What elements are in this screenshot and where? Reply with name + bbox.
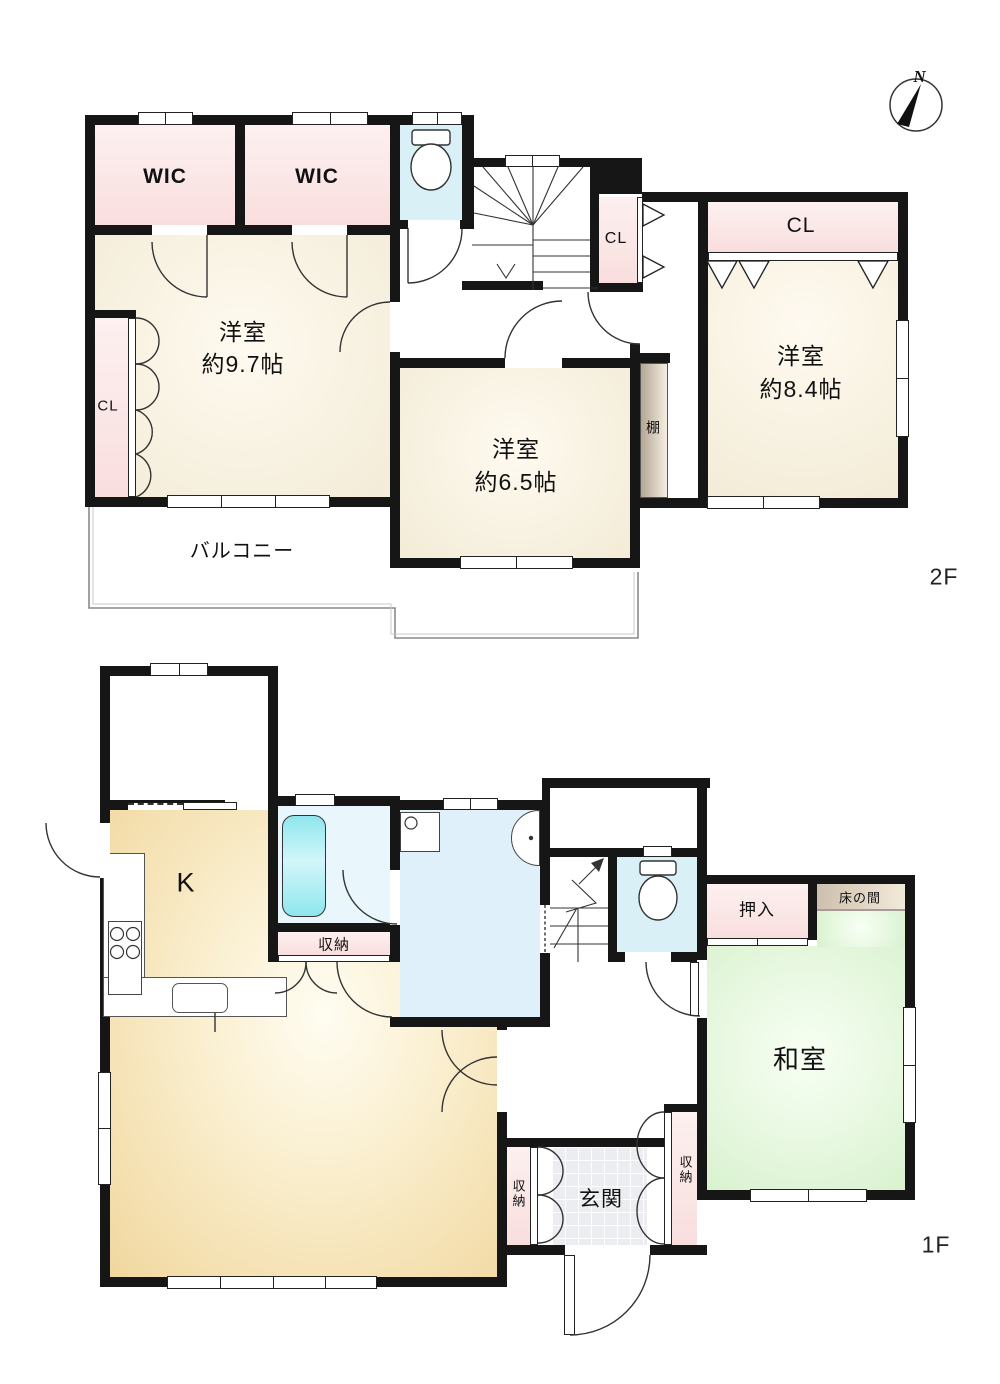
label-storage-bath: 収納 <box>318 934 350 955</box>
door-opening <box>100 823 110 878</box>
label-compass-north: N <box>913 67 926 87</box>
wall <box>542 848 608 857</box>
window <box>295 794 335 806</box>
wall <box>100 666 110 800</box>
closet-84-shelf <box>708 252 898 261</box>
pass-through-opening <box>128 803 183 810</box>
wall <box>268 923 400 932</box>
label-storage-entry-left: 収納 <box>509 1179 528 1209</box>
label-shelf: 棚 <box>643 420 663 436</box>
wall <box>697 875 707 1200</box>
door-opening <box>408 220 460 229</box>
door-opening <box>152 225 207 235</box>
label-room84-size: 約8.4帖 <box>760 370 843 404</box>
door-opening <box>505 358 562 368</box>
wall <box>390 115 400 225</box>
room-washitsu-ext <box>817 911 905 947</box>
door-opening <box>497 1030 507 1112</box>
wall <box>390 1017 550 1027</box>
label-kitchen: K <box>176 868 195 899</box>
storage-bath-door-front <box>278 955 390 962</box>
door-opening <box>630 292 640 344</box>
wall <box>462 281 543 290</box>
door-opening <box>625 952 671 962</box>
closet-left-door-front <box>128 318 136 497</box>
window <box>643 846 672 857</box>
label-genkan: 玄関 <box>579 1183 623 1213</box>
label-floor-1f: 1F <box>922 1232 951 1259</box>
kitchen-sink <box>172 983 228 1013</box>
washing-machine-pan <box>400 812 440 852</box>
wall <box>808 884 817 940</box>
wall <box>268 796 278 932</box>
wall <box>590 158 642 194</box>
wall <box>664 1104 707 1112</box>
tokonoma-edge <box>817 909 905 911</box>
wall <box>268 923 278 962</box>
wall <box>698 192 708 508</box>
label-room97-name: 洋室 <box>219 313 267 347</box>
wall <box>542 778 710 788</box>
window <box>167 495 330 508</box>
wall <box>462 115 474 228</box>
wall <box>390 358 400 568</box>
label-closet-stairs: CL <box>605 230 627 248</box>
wall <box>590 194 599 292</box>
stairs-1f <box>550 858 608 962</box>
storage-entry-left-front <box>530 1147 538 1245</box>
storage-entry-right-front <box>664 1112 672 1245</box>
bathtub <box>282 815 326 917</box>
label-balcony: バルコニー <box>190 535 295 564</box>
window <box>183 802 237 810</box>
wall <box>542 778 550 810</box>
label-floor-2f: 2F <box>930 564 959 591</box>
closet-stairs-door-front <box>637 197 643 283</box>
wall <box>497 1138 672 1147</box>
kitchen-stove <box>108 921 142 995</box>
label-wic-1: WIC <box>143 165 187 189</box>
label-storage-entry-right: 収納 <box>676 1155 695 1185</box>
room-toilet-2f <box>400 125 462 220</box>
label-closet-left: CL <box>97 398 118 415</box>
label-room65-name: 洋室 <box>492 430 540 464</box>
door-opening <box>540 905 550 953</box>
wall <box>85 310 136 318</box>
room-toilet-1f <box>617 857 697 952</box>
door-opening <box>292 225 347 235</box>
label-closet-84: CL <box>787 214 816 238</box>
label-room84-name: 洋室 <box>777 337 825 371</box>
label-tokonoma: 床の間 <box>839 888 881 907</box>
label-room65-size: 約6.5帖 <box>475 463 558 497</box>
entrance-door-leaf <box>564 1255 575 1335</box>
label-wic-2: WIC <box>295 165 339 189</box>
wall <box>268 666 278 806</box>
wall <box>608 848 617 962</box>
label-room97-size: 約9.7帖 <box>202 345 285 379</box>
label-oshiire: 押入 <box>739 896 775 921</box>
floor-plan-canvas: WIC WIC CL CL CL 洋室 約9.7帖 洋室 約6.5帖 洋室 約8… <box>0 0 1000 1384</box>
label-washitsu: 和室 <box>773 1040 827 1077</box>
washitsu-door-leaf <box>690 962 699 1016</box>
door-opening <box>565 1245 650 1255</box>
window <box>167 1276 377 1289</box>
stairs-2f <box>472 167 598 290</box>
door-opening <box>390 870 400 925</box>
door-opening <box>390 302 400 352</box>
wall <box>235 125 245 225</box>
wall <box>642 192 908 202</box>
wall <box>697 875 915 884</box>
